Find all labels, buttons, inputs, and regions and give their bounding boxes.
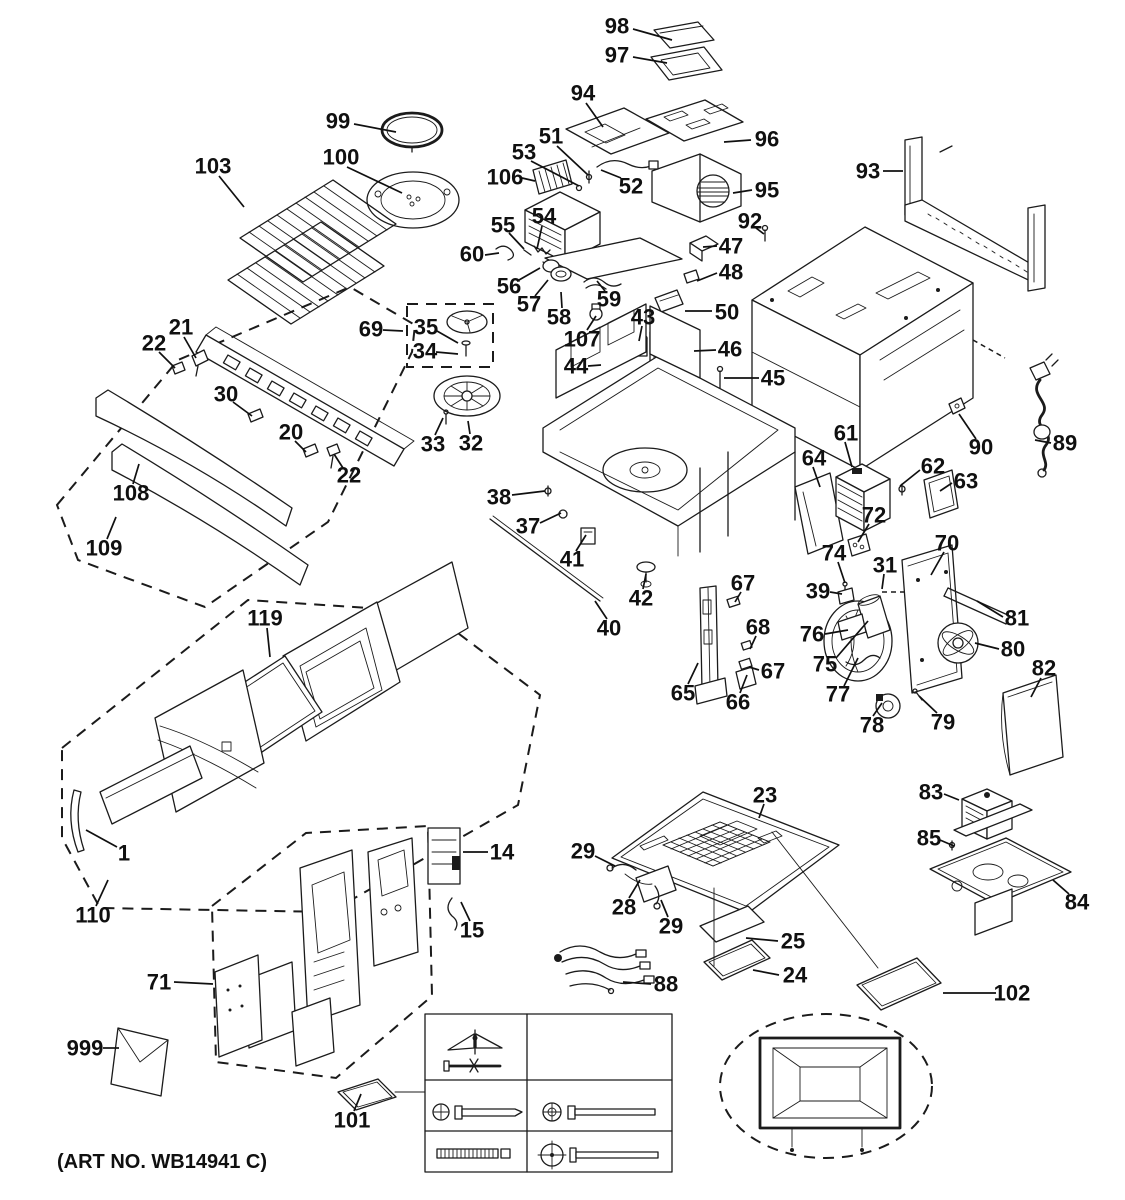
art-number: (ART NO. WB14941 C) xyxy=(57,1151,267,1173)
filter-plates xyxy=(700,906,770,980)
part-label-99: 99 xyxy=(326,109,350,134)
part-label-106: 106 xyxy=(487,165,524,190)
part-label-24: 24 xyxy=(783,963,808,988)
blower-group xyxy=(824,534,1010,718)
part-label-23: 23 xyxy=(753,783,777,808)
transformer xyxy=(954,789,1032,839)
filter-plate-101 xyxy=(338,1079,396,1110)
part-label-119: 119 xyxy=(247,606,283,631)
side-cover xyxy=(1002,675,1063,775)
part-label-44: 44 xyxy=(564,354,589,379)
part-label-22-a: 22 xyxy=(142,331,166,356)
part-label-67-a: 67 xyxy=(731,571,755,596)
part-label-43: 43 xyxy=(631,305,655,330)
part-label-999: 999 xyxy=(67,1036,104,1061)
part-label-40: 40 xyxy=(597,616,621,641)
part-label-63: 63 xyxy=(954,469,978,494)
shelf-rack xyxy=(228,180,396,324)
leader-line-103 xyxy=(219,176,244,207)
part-label-71: 71 xyxy=(147,970,171,995)
part-label-14: 14 xyxy=(490,840,515,865)
part-label-92: 92 xyxy=(738,209,762,234)
part-label-1: 1 xyxy=(118,841,130,866)
part-label-37: 37 xyxy=(516,514,540,539)
turntable-plate xyxy=(367,172,459,228)
part-label-101: 101 xyxy=(334,1108,371,1133)
part-label-69: 69 xyxy=(359,317,383,342)
part-label-32: 32 xyxy=(459,431,483,456)
part-label-102: 102 xyxy=(994,981,1031,1006)
leader-line-100 xyxy=(347,167,402,193)
part-label-83: 83 xyxy=(919,780,943,805)
power-cord xyxy=(1030,354,1058,477)
installation-view xyxy=(720,1014,932,1158)
leader-line-83 xyxy=(944,794,959,800)
part-label-80: 80 xyxy=(1001,637,1025,662)
part-label-93: 93 xyxy=(856,159,880,184)
part-label-70: 70 xyxy=(935,531,959,556)
leader-line-71 xyxy=(174,982,213,984)
part-label-31: 31 xyxy=(873,553,897,578)
part-label-38: 38 xyxy=(487,485,511,510)
door-group xyxy=(62,562,540,912)
leader-line-69 xyxy=(383,330,403,331)
part-label-42: 42 xyxy=(629,586,653,611)
grease-filter xyxy=(857,958,941,1010)
part-label-97: 97 xyxy=(605,43,629,68)
part-label-51: 51 xyxy=(539,124,563,149)
part-label-90: 90 xyxy=(969,435,993,460)
part-label-29-a: 29 xyxy=(571,839,595,864)
part-label-109: 109 xyxy=(86,536,123,561)
part-label-46: 46 xyxy=(718,337,742,362)
part-label-34: 34 xyxy=(413,339,438,364)
literature-envelope xyxy=(111,1028,168,1096)
leader-line-44 xyxy=(588,365,601,366)
base-plate xyxy=(930,838,1071,935)
leader-line-48 xyxy=(697,273,717,281)
part-label-59: 59 xyxy=(597,287,621,312)
leader-line-38 xyxy=(512,491,545,495)
part-label-57: 57 xyxy=(517,292,541,317)
part-label-68: 68 xyxy=(746,615,770,640)
leader-line-56 xyxy=(519,268,540,280)
leader-line-60 xyxy=(485,253,499,255)
part-label-62: 62 xyxy=(921,454,945,479)
part-label-35: 35 xyxy=(414,315,438,340)
leader-line-1 xyxy=(86,830,117,847)
leader-line-81 xyxy=(977,601,1003,617)
part-label-20: 20 xyxy=(279,420,303,445)
part-label-66: 66 xyxy=(726,690,750,715)
fan-assembly xyxy=(652,154,741,222)
part-label-85: 85 xyxy=(917,826,941,851)
leader-line-106 xyxy=(522,178,535,181)
leader-line-80 xyxy=(975,643,999,649)
leader-line-46 xyxy=(694,350,716,351)
part-label-60: 60 xyxy=(460,242,484,267)
part-label-89: 89 xyxy=(1053,431,1077,456)
leader-line-47 xyxy=(703,246,717,247)
part-label-98: 98 xyxy=(605,14,629,39)
part-label-100: 100 xyxy=(323,145,360,170)
part-label-84: 84 xyxy=(1065,890,1090,915)
leader-line-24 xyxy=(753,970,779,975)
part-label-15: 15 xyxy=(460,918,484,943)
part-label-88: 88 xyxy=(654,972,678,997)
part-label-47: 47 xyxy=(719,234,743,259)
part-label-33: 33 xyxy=(421,432,445,457)
part-label-82: 82 xyxy=(1032,656,1056,681)
part-label-94: 94 xyxy=(571,81,596,106)
part-label-95: 95 xyxy=(755,178,779,203)
part-label-28: 28 xyxy=(612,895,636,920)
leader-line-62 xyxy=(900,470,920,486)
leader-line-34 xyxy=(436,352,458,354)
part-label-21: 21 xyxy=(169,315,193,340)
leader-line-96 xyxy=(724,140,751,142)
part-label-81: 81 xyxy=(1005,606,1029,631)
part-label-39: 39 xyxy=(806,579,830,604)
hardware-kit-box xyxy=(425,1014,672,1172)
part-label-103: 103 xyxy=(195,154,232,179)
part-label-72: 72 xyxy=(862,503,886,528)
leader-line-99 xyxy=(354,124,396,132)
part-label-76: 76 xyxy=(800,622,824,647)
leader-line-37 xyxy=(540,513,561,523)
part-label-74: 74 xyxy=(822,541,847,566)
part-label-64: 64 xyxy=(802,446,827,471)
wiring-harness xyxy=(554,946,654,994)
leader-line-119 xyxy=(267,628,270,657)
diagram-canvas: (ART NO. WB14941 C) 98979499519653100103… xyxy=(0,0,1125,1200)
part-label-55: 55 xyxy=(491,213,515,238)
part-label-78: 78 xyxy=(860,713,884,738)
part-label-61: 61 xyxy=(834,421,858,446)
part-label-50: 50 xyxy=(715,300,739,325)
part-label-54: 54 xyxy=(532,204,557,229)
part-label-22-b: 22 xyxy=(337,463,361,488)
part-label-96: 96 xyxy=(755,127,779,152)
part-label-52: 52 xyxy=(619,174,643,199)
part-label-30: 30 xyxy=(214,382,238,407)
part-label-48: 48 xyxy=(719,260,743,285)
part-label-41: 41 xyxy=(560,547,584,572)
part-label-53: 53 xyxy=(512,140,536,165)
part-label-107: 107 xyxy=(564,327,601,352)
part-label-67-b: 67 xyxy=(761,659,785,684)
turntable-ring xyxy=(382,113,442,152)
part-label-108: 108 xyxy=(113,481,150,506)
latch-group xyxy=(695,586,756,704)
part-label-110: 110 xyxy=(75,903,111,928)
exploded-parts-diagram: (ART NO. WB14941 C) 98979499519653100103… xyxy=(0,0,1125,1200)
part-label-29-b: 29 xyxy=(659,914,683,939)
leader-line-35 xyxy=(437,331,458,343)
part-label-77: 77 xyxy=(826,682,850,707)
part-label-79: 79 xyxy=(931,710,955,735)
part-label-65: 65 xyxy=(671,681,695,706)
control-board-group xyxy=(212,826,460,1078)
part-label-45: 45 xyxy=(761,366,785,391)
part-label-25: 25 xyxy=(781,929,805,954)
leader-line-21 xyxy=(184,337,196,358)
chassis-base xyxy=(490,304,795,601)
part-label-75: 75 xyxy=(813,652,837,677)
